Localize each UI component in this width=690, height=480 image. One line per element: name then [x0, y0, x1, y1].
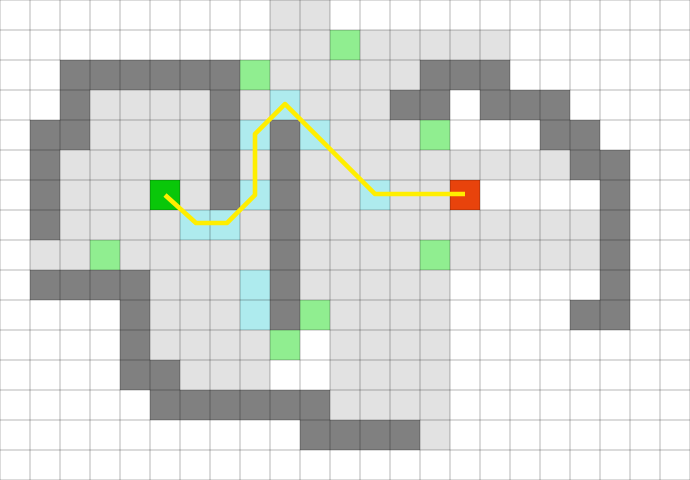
- floor-cell[interactable]: [420, 360, 450, 390]
- floor-cell[interactable]: [510, 240, 540, 270]
- wall-cell[interactable]: [600, 240, 630, 270]
- wall-cell[interactable]: [390, 90, 420, 120]
- floor-cell[interactable]: [330, 270, 360, 300]
- floor-cell[interactable]: [210, 270, 240, 300]
- floor-cell[interactable]: [540, 150, 570, 180]
- floor-cell[interactable]: [390, 300, 420, 330]
- light-green-cell[interactable]: [420, 240, 450, 270]
- floor-cell[interactable]: [240, 90, 270, 120]
- floor-cell[interactable]: [360, 90, 390, 120]
- wall-cell[interactable]: [480, 60, 510, 90]
- floor-cell[interactable]: [210, 300, 240, 330]
- floor-cell[interactable]: [540, 210, 570, 240]
- floor-cell[interactable]: [120, 180, 150, 210]
- floor-cell[interactable]: [300, 0, 330, 30]
- wall-cell[interactable]: [120, 360, 150, 390]
- floor-cell[interactable]: [180, 150, 210, 180]
- floor-cell[interactable]: [390, 120, 420, 150]
- floor-cell[interactable]: [90, 180, 120, 210]
- wall-cell[interactable]: [210, 90, 240, 120]
- wall-cell[interactable]: [60, 120, 90, 150]
- floor-cell[interactable]: [420, 420, 450, 450]
- floor-cell[interactable]: [180, 180, 210, 210]
- wall-cell[interactable]: [390, 420, 420, 450]
- wall-cell[interactable]: [360, 420, 390, 450]
- wall-cell[interactable]: [150, 390, 180, 420]
- floor-cell[interactable]: [510, 150, 540, 180]
- wall-cell[interactable]: [150, 360, 180, 390]
- floor-cell[interactable]: [540, 240, 570, 270]
- floor-cell[interactable]: [120, 120, 150, 150]
- floor-cell[interactable]: [390, 330, 420, 360]
- wall-cell[interactable]: [30, 180, 60, 210]
- floor-cell[interactable]: [450, 240, 480, 270]
- floor-cell[interactable]: [330, 390, 360, 420]
- floor-cell[interactable]: [180, 240, 210, 270]
- wall-cell[interactable]: [270, 180, 300, 210]
- floor-cell[interactable]: [150, 240, 180, 270]
- floor-cell[interactable]: [450, 210, 480, 240]
- floor-cell[interactable]: [60, 210, 90, 240]
- floor-cell[interactable]: [390, 150, 420, 180]
- wall-cell[interactable]: [270, 210, 300, 240]
- wall-cell[interactable]: [270, 120, 300, 150]
- floor-cell[interactable]: [420, 30, 450, 60]
- wall-cell[interactable]: [270, 270, 300, 300]
- wall-cell[interactable]: [60, 90, 90, 120]
- wall-cell[interactable]: [210, 60, 240, 90]
- floor-cell[interactable]: [300, 210, 330, 240]
- wall-cell[interactable]: [90, 270, 120, 300]
- wall-cell[interactable]: [270, 150, 300, 180]
- floor-cell[interactable]: [360, 30, 390, 60]
- floor-cell[interactable]: [420, 300, 450, 330]
- floor-cell[interactable]: [570, 240, 600, 270]
- wall-cell[interactable]: [210, 120, 240, 150]
- wall-cell[interactable]: [180, 60, 210, 90]
- floor-cell[interactable]: [210, 240, 240, 270]
- floor-cell[interactable]: [330, 240, 360, 270]
- floor-cell[interactable]: [60, 180, 90, 210]
- light-green-cell[interactable]: [240, 60, 270, 90]
- gridworld-stage: [0, 0, 690, 480]
- floor-cell[interactable]: [360, 330, 390, 360]
- wall-cell[interactable]: [330, 420, 360, 450]
- floor-cell[interactable]: [360, 270, 390, 300]
- floor-cell[interactable]: [60, 150, 90, 180]
- floor-cell[interactable]: [270, 0, 300, 30]
- floor-cell[interactable]: [330, 90, 360, 120]
- floor-cell[interactable]: [210, 360, 240, 390]
- floor-cell[interactable]: [60, 240, 90, 270]
- floor-cell[interactable]: [390, 360, 420, 390]
- wall-cell[interactable]: [120, 270, 150, 300]
- floor-cell[interactable]: [330, 360, 360, 390]
- wall-cell[interactable]: [90, 60, 120, 90]
- wall-cell[interactable]: [300, 420, 330, 450]
- wall-cell[interactable]: [420, 60, 450, 90]
- floor-cell[interactable]: [150, 270, 180, 300]
- floor-cell[interactable]: [300, 30, 330, 60]
- floor-cell[interactable]: [390, 270, 420, 300]
- floor-cell[interactable]: [450, 150, 480, 180]
- wall-cell[interactable]: [30, 120, 60, 150]
- wall-cell[interactable]: [570, 120, 600, 150]
- wall-cell[interactable]: [570, 300, 600, 330]
- floor-cell[interactable]: [330, 60, 360, 90]
- wall-cell[interactable]: [30, 270, 60, 300]
- floor-cell[interactable]: [120, 150, 150, 180]
- floor-cell[interactable]: [480, 210, 510, 240]
- floor-cell[interactable]: [330, 330, 360, 360]
- wall-cell[interactable]: [600, 300, 630, 330]
- floor-cell[interactable]: [300, 90, 330, 120]
- floor-cell[interactable]: [30, 240, 60, 270]
- floor-cell[interactable]: [150, 150, 180, 180]
- floor-cell[interactable]: [330, 120, 360, 150]
- light-green-cell[interactable]: [90, 240, 120, 270]
- floor-cell[interactable]: [300, 270, 330, 300]
- wall-cell[interactable]: [210, 150, 240, 180]
- wall-cell[interactable]: [30, 150, 60, 180]
- wall-cell[interactable]: [120, 300, 150, 330]
- floor-cell[interactable]: [330, 300, 360, 330]
- floor-cell[interactable]: [390, 60, 420, 90]
- floor-cell[interactable]: [120, 240, 150, 270]
- floor-cell[interactable]: [420, 210, 450, 240]
- floor-cell[interactable]: [360, 390, 390, 420]
- floor-cell[interactable]: [180, 90, 210, 120]
- wall-cell[interactable]: [510, 90, 540, 120]
- light-green-cell[interactable]: [270, 330, 300, 360]
- wall-cell[interactable]: [60, 270, 90, 300]
- wall-cell[interactable]: [450, 60, 480, 90]
- floor-cell[interactable]: [270, 30, 300, 60]
- floor-cell[interactable]: [180, 300, 210, 330]
- wall-cell[interactable]: [540, 120, 570, 150]
- floor-cell[interactable]: [360, 60, 390, 90]
- floor-cell[interactable]: [180, 270, 210, 300]
- floor-cell[interactable]: [360, 360, 390, 390]
- floor-cell[interactable]: [150, 300, 180, 330]
- floor-cell[interactable]: [480, 30, 510, 60]
- floor-cell[interactable]: [240, 330, 270, 360]
- floor-cell[interactable]: [180, 360, 210, 390]
- floor-cell[interactable]: [480, 150, 510, 180]
- floor-cell[interactable]: [360, 150, 390, 180]
- floor-cell[interactable]: [360, 300, 390, 330]
- floor-cell[interactable]: [360, 120, 390, 150]
- floor-cell[interactable]: [180, 120, 210, 150]
- floor-cell[interactable]: [180, 330, 210, 360]
- floor-cell[interactable]: [90, 120, 120, 150]
- wall-cell[interactable]: [120, 60, 150, 90]
- wall-cell[interactable]: [210, 390, 240, 420]
- wall-cell[interactable]: [120, 330, 150, 360]
- floor-cell[interactable]: [300, 240, 330, 270]
- wall-cell[interactable]: [540, 90, 570, 120]
- floor-cell[interactable]: [390, 30, 420, 60]
- wall-cell[interactable]: [600, 180, 630, 210]
- floor-cell[interactable]: [390, 210, 420, 240]
- floor-cell[interactable]: [480, 240, 510, 270]
- light-green-cell[interactable]: [300, 300, 330, 330]
- floor-cell[interactable]: [510, 210, 540, 240]
- wall-cell[interactable]: [30, 210, 60, 240]
- wall-cell[interactable]: [240, 390, 270, 420]
- floor-cell[interactable]: [150, 90, 180, 120]
- floor-cell[interactable]: [90, 150, 120, 180]
- wall-cell[interactable]: [180, 390, 210, 420]
- grid-map: [0, 0, 690, 480]
- light-green-cell[interactable]: [420, 120, 450, 150]
- floor-cell[interactable]: [360, 210, 390, 240]
- cyan-cell[interactable]: [240, 270, 270, 300]
- floor-cell[interactable]: [210, 330, 240, 360]
- floor-cell[interactable]: [330, 180, 360, 210]
- floor-cell[interactable]: [300, 150, 330, 180]
- wall-cell[interactable]: [600, 270, 630, 300]
- cyan-cell[interactable]: [240, 300, 270, 330]
- floor-cell[interactable]: [390, 240, 420, 270]
- floor-cell[interactable]: [150, 210, 180, 240]
- wall-cell[interactable]: [150, 60, 180, 90]
- wall-cell[interactable]: [570, 150, 600, 180]
- floor-cell[interactable]: [90, 90, 120, 120]
- wall-cell[interactable]: [270, 390, 300, 420]
- wall-cell[interactable]: [600, 210, 630, 240]
- wall-cell[interactable]: [420, 90, 450, 120]
- floor-cell[interactable]: [150, 330, 180, 360]
- floor-cell[interactable]: [360, 240, 390, 270]
- floor-cell[interactable]: [150, 120, 180, 150]
- wall-cell[interactable]: [600, 150, 630, 180]
- floor-cell[interactable]: [390, 390, 420, 420]
- floor-cell[interactable]: [240, 240, 270, 270]
- floor-cell[interactable]: [120, 210, 150, 240]
- wall-cell[interactable]: [60, 60, 90, 90]
- floor-cell[interactable]: [120, 90, 150, 120]
- floor-cell[interactable]: [420, 150, 450, 180]
- floor-cell[interactable]: [420, 390, 450, 420]
- floor-cell[interactable]: [300, 180, 330, 210]
- floor-cell[interactable]: [420, 270, 450, 300]
- wall-cell[interactable]: [270, 240, 300, 270]
- floor-cell[interactable]: [330, 210, 360, 240]
- floor-cell[interactable]: [270, 60, 300, 90]
- floor-cell[interactable]: [420, 330, 450, 360]
- wall-cell[interactable]: [270, 300, 300, 330]
- floor-cell[interactable]: [240, 360, 270, 390]
- wall-cell[interactable]: [480, 90, 510, 120]
- floor-cell[interactable]: [300, 60, 330, 90]
- floor-cell[interactable]: [450, 30, 480, 60]
- floor-cell[interactable]: [570, 210, 600, 240]
- light-green-cell[interactable]: [330, 30, 360, 60]
- wall-cell[interactable]: [210, 180, 240, 210]
- wall-cell[interactable]: [300, 390, 330, 420]
- floor-cell[interactable]: [240, 210, 270, 240]
- floor-cell[interactable]: [90, 210, 120, 240]
